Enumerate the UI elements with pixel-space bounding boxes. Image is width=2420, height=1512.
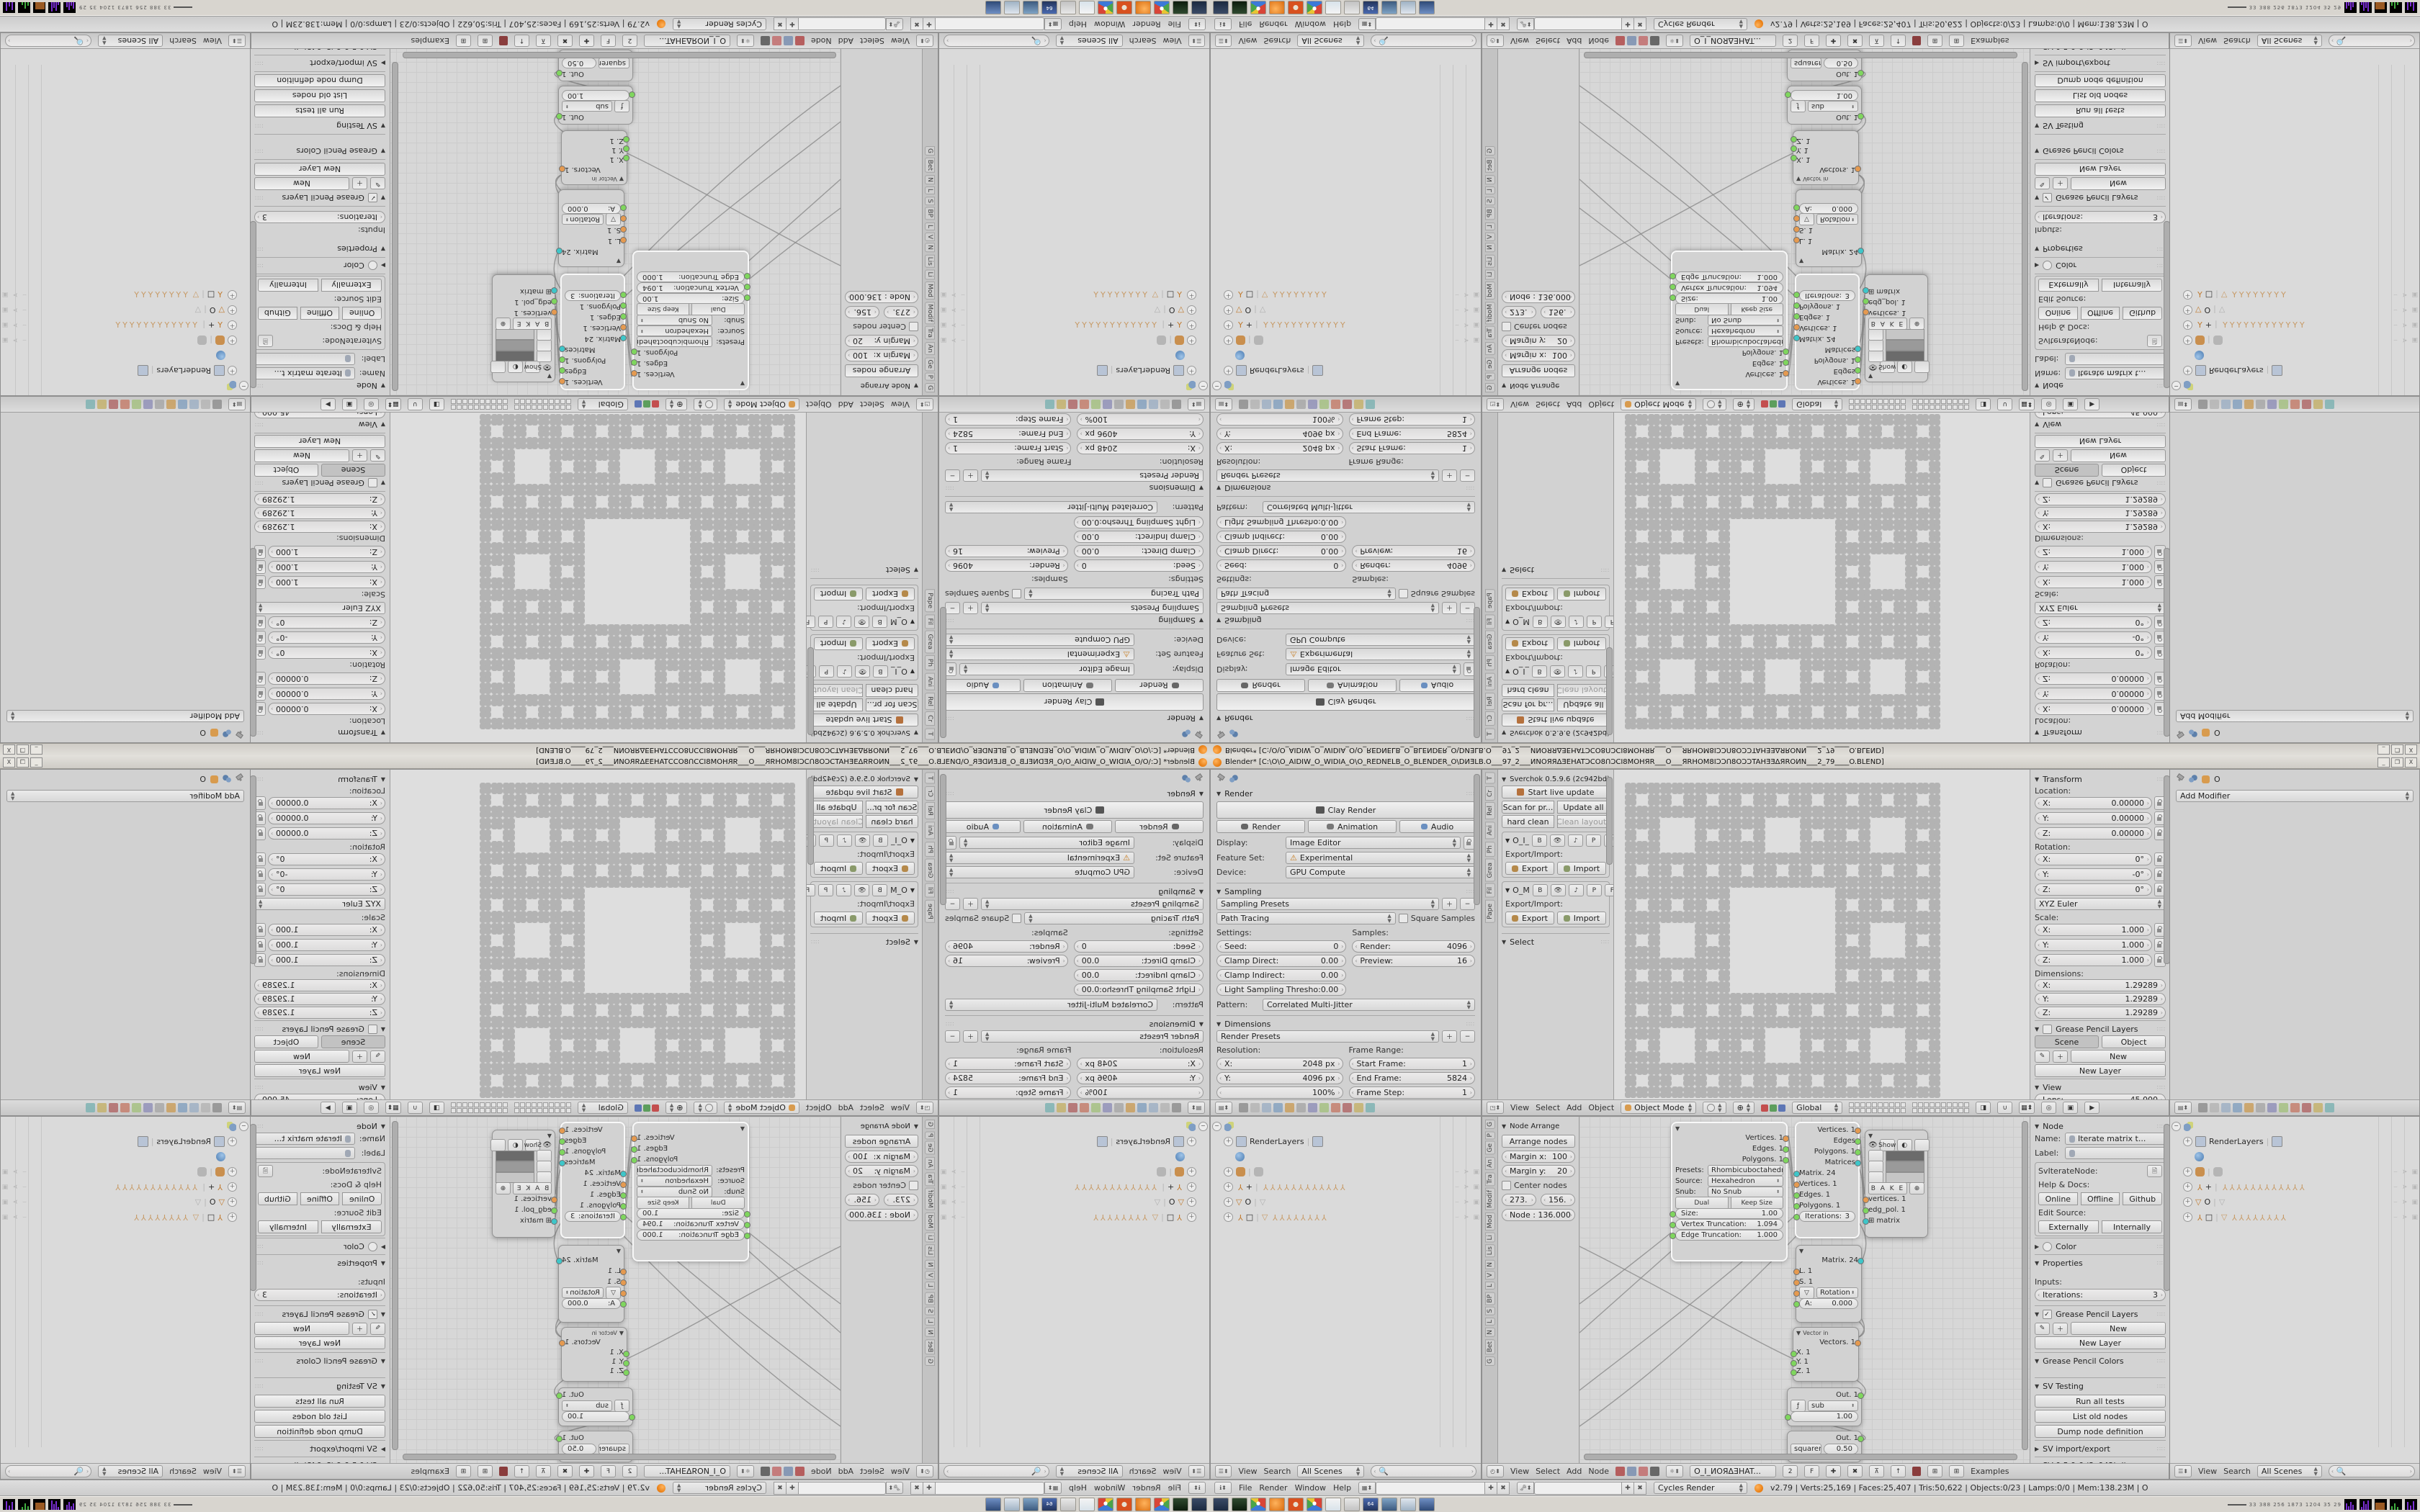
hide-icon[interactable]: ⌣	[961, 1214, 965, 1221]
node-iterate-matrix[interactable]: Vertices. 1 Edges Polygons. 1 Matrices M…	[1796, 1122, 1859, 1238]
dim-z-field[interactable]: Z:1.29289	[254, 1007, 385, 1019]
add-menu[interactable]: Add	[1567, 1467, 1582, 1476]
taskbar-app-viewer-icon[interactable]	[1381, 1, 1397, 14]
socket-x-in[interactable]	[623, 155, 629, 161]
online-button[interactable]: Online	[2038, 307, 2078, 320]
node-tab[interactable]: An	[1485, 1157, 1495, 1170]
hide-icon[interactable]: ⌣	[961, 1199, 965, 1206]
scale-z-field[interactable]: Z:1.000	[2035, 546, 2152, 558]
hard-clean-button[interactable]: hard clean	[1502, 684, 1554, 697]
expand-icon[interactable]: ＋	[2183, 290, 2192, 300]
render-icon[interactable]: ▣	[2, 1184, 9, 1191]
hide-icon[interactable]: ⌣	[22, 292, 27, 299]
pattern-dropdown[interactable]: Correlated Multi-Jitter▲▼	[1263, 999, 1475, 1011]
node-menu[interactable]: Node	[1588, 36, 1609, 45]
node-tab[interactable]: An	[926, 342, 936, 355]
socket-scale-in[interactable]	[620, 226, 627, 233]
expand-icon[interactable]: ＋	[2183, 336, 2192, 345]
eye-toggle-icon[interactable]: 👁	[854, 884, 869, 896]
socket-y-in[interactable]	[623, 1360, 629, 1367]
hide-icon[interactable]: ⌣	[2393, 1184, 2398, 1191]
examples-menu[interactable]: Examples	[411, 36, 449, 45]
function-dropdown[interactable]: sub⬍	[562, 101, 612, 112]
gp-new-button[interactable]: New	[2071, 1322, 2166, 1335]
bake-settings-icon[interactable]: ⊕	[1909, 1182, 1924, 1194]
render-ogl-icon[interactable]: ▣	[342, 1102, 357, 1114]
manipulator-icons[interactable]	[1761, 401, 1785, 408]
node-tab[interactable]: L	[1485, 1318, 1495, 1326]
data-tab-icon[interactable]	[1091, 400, 1101, 409]
world-tab-icon[interactable]	[1137, 400, 1147, 409]
tab-grease-pencil[interactable]: Grea	[1485, 859, 1495, 882]
hide-icon[interactable]: ⌣	[961, 1169, 965, 1176]
edge-truncation-field[interactable]: Edge Truncation:1.000	[1675, 1230, 1783, 1241]
node-tab[interactable]: Lis	[926, 254, 936, 267]
socket-edges-out[interactable]	[631, 1146, 637, 1153]
properties-tab-icons[interactable]	[1045, 1103, 1181, 1112]
canvas-v-scrollbar[interactable]	[392, 62, 398, 391]
preview-samples-field[interactable]: Preview:16	[1352, 955, 1475, 967]
taskbar-app-chrome-icon[interactable]	[1154, 1, 1170, 14]
sampling-panel-header[interactable]: ▼Sampling∷∷	[1216, 614, 1475, 627]
proportional-edit-icon[interactable]: ◎	[364, 1102, 379, 1114]
view-panel-header[interactable]: ▼View∷∷	[2035, 1081, 2166, 1094]
pencil-icon[interactable]: ✎	[2035, 1323, 2050, 1335]
edge-color-swatch[interactable]	[496, 1161, 534, 1172]
end-frame-field[interactable]: End Frame:5824	[1349, 1072, 1476, 1084]
select-menu[interactable]: Select	[1536, 1467, 1560, 1476]
render-tab-icon[interactable]	[1172, 1103, 1181, 1112]
rotation-y-field[interactable]: Y:-0°	[2035, 631, 2152, 644]
socket-scale-in[interactable]	[620, 1279, 627, 1286]
scene-tab-icon[interactable]	[1262, 1103, 1271, 1112]
node-tab[interactable]: N	[1485, 1260, 1495, 1269]
node-tab[interactable]: N	[926, 175, 936, 184]
tab-tools[interactable]: T	[926, 773, 936, 784]
feature-set-dropdown[interactable]: ⚠ Experimental▲▼	[945, 648, 1134, 660]
node-tab[interactable]: L	[926, 1318, 936, 1326]
view-panel-header[interactable]: ▼View∷∷	[2035, 418, 2166, 431]
gp-layers-panel-header[interactable]: ▼Grease Pencil Layers∷∷	[254, 192, 385, 204]
transform-panel-header[interactable]: ▼Transform∷∷	[254, 726, 385, 739]
restrict-toggles[interactable]: ⌣➤▣	[2, 292, 27, 299]
resolution-x-field[interactable]: X:2048 px	[1077, 442, 1204, 454]
sv-testing-panel-header[interactable]: ▼SV Testing∷∷	[254, 120, 385, 132]
delete-scene-button[interactable]: ✖	[1634, 18, 1646, 31]
clay-render-button[interactable]: Clay Render	[945, 801, 1204, 819]
socket-matrices-out[interactable]	[559, 1160, 565, 1166]
sampling-panel-header[interactable]: ▼Sampling∷∷	[1216, 885, 1475, 898]
restrict-toggles[interactable]: ⌣➤▣	[2393, 337, 2418, 344]
display-mode-dropdown[interactable]: All Scenes▲▼	[1056, 35, 1123, 47]
sv-testing-panel-header[interactable]: ▼SV Testing∷∷	[2035, 120, 2166, 132]
render-icon[interactable]: ▣	[2, 337, 9, 344]
import-button[interactable]: Import	[1557, 862, 1606, 875]
disk-graph-widget[interactable]	[2405, 1499, 2417, 1510]
render-icon[interactable]: ▣	[2411, 322, 2418, 329]
node-vector-in[interactable]: ▼Vector in Vectors. 1 X. 1 Y. 1 Z. 1	[561, 130, 627, 185]
function-icon[interactable]: ƒ	[1791, 1400, 1806, 1412]
socket-vertices-in[interactable]	[1793, 1182, 1800, 1188]
texture-tree-icon[interactable]	[772, 1467, 781, 1476]
screen-layout-selector[interactable]: ▦⬍ ✚✖	[910, 18, 1062, 31]
scan-for-props-button[interactable]: Scan for pr...	[866, 801, 918, 814]
add-modifier-dropdown[interactable]: Add Modifier▲▼	[2176, 710, 2414, 722]
socket-vertices-out[interactable]	[1855, 1128, 1861, 1134]
particles-tab-icon[interactable]	[1057, 400, 1066, 409]
node-tab[interactable]: V	[1485, 233, 1495, 241]
object-tab-icon[interactable]	[2244, 400, 2254, 409]
render-panel-header[interactable]: ▼Render∷∷	[945, 787, 1204, 800]
render-engine-dropdown[interactable]: Cycles Render▲▼	[673, 1482, 766, 1494]
shader-tree-icon[interactable]	[795, 36, 805, 45]
node-tab[interactable]: Li	[1485, 270, 1495, 280]
tab-filter[interactable]: Fil	[926, 883, 936, 898]
transform-panel-header[interactable]: ▼Transform∷∷	[254, 773, 385, 786]
render-engine-dropdown[interactable]: Cycles Render▲▼	[673, 18, 766, 30]
outliner-row-world[interactable]	[941, 1149, 1208, 1164]
gp-new-button[interactable]: New	[2071, 449, 2166, 462]
window-menu[interactable]: Window	[1295, 1483, 1326, 1493]
taskbar-app-viewer-icon[interactable]	[1023, 1498, 1039, 1511]
restrict-toggles[interactable]: ⌣➤▣	[941, 1184, 965, 1191]
sampling-panel-header[interactable]: ▼Sampling∷∷	[945, 885, 1204, 898]
search-input[interactable]: 🔍	[2329, 35, 2415, 47]
render-menu[interactable]: Render	[1259, 19, 1287, 29]
socket-size-in[interactable]	[1670, 294, 1676, 301]
search-input[interactable]: 🔍	[5, 35, 91, 47]
clamp-indirect-field[interactable]: Clamp Indirect:0.00	[1216, 969, 1346, 981]
pivot-dropdown[interactable]: ⊕▲▼	[665, 1102, 688, 1114]
node-matrix-in[interactable]: ▼ Matrix. 24 L. 1 S. 1 ▽Rotation⬍ A:0.00…	[1796, 1245, 1862, 1323]
socket-matrix-out[interactable]	[556, 248, 563, 254]
snap-element-dropdown[interactable]: ▦⬍	[2019, 1102, 2035, 1114]
value-field[interactable]: 0.50	[562, 1444, 597, 1454]
presets-dropdown[interactable]: Rhombicuboctahedron⬍	[637, 336, 712, 347]
socket-polygons-out[interactable]	[1855, 356, 1861, 363]
socket-size-in[interactable]	[744, 294, 750, 301]
show-toggle[interactable]: Show	[1880, 361, 1895, 373]
expand-icon[interactable]: ＋	[228, 366, 237, 375]
search-input[interactable]: 🔍	[944, 1465, 1049, 1477]
vertex-color-swatch[interactable]	[1886, 351, 1924, 361]
bake-button[interactable]: B A K E	[1868, 318, 1907, 330]
constraints-tab-icon[interactable]	[155, 400, 164, 409]
view-menu[interactable]: View	[203, 36, 222, 45]
internally-button[interactable]: Internally	[258, 279, 318, 292]
collapse-icon[interactable]: ▼	[1675, 380, 1680, 387]
texture-tab-icon[interactable]	[2302, 400, 2311, 409]
socket-matrix-in[interactable]	[1793, 335, 1800, 341]
node-tab[interactable]: Ge	[1485, 1141, 1495, 1155]
socket-out[interactable]	[1857, 1392, 1864, 1399]
arrange-nodes-button[interactable]: Arrange nodes	[845, 1135, 918, 1148]
iterations-field[interactable]: Iterations:3	[565, 1211, 621, 1222]
layout-grid-icon-2[interactable]: ⊞	[456, 1465, 471, 1477]
start-live-update-button[interactable]: Start live update	[1502, 786, 1610, 798]
collapse-icon[interactable]: ▼	[910, 618, 915, 625]
outliner-row-armature-box[interactable]: ＋ Y □ | ▽ YYYYYYYY ⌣➤▣	[2, 1210, 248, 1225]
delete-layout-button[interactable]: ✖	[1497, 1482, 1510, 1495]
render-icon[interactable]: ▣	[1473, 1214, 1479, 1221]
world-tab-icon[interactable]	[178, 1103, 187, 1112]
hide-icon[interactable]: ⌣	[2393, 292, 2398, 299]
layer-grid-2[interactable]	[451, 1102, 508, 1113]
cpu-graph-widget[interactable]	[63, 2, 76, 13]
gp-object-tab[interactable]: Object	[254, 464, 318, 477]
expand-icon[interactable]: ＋	[2183, 1167, 2192, 1176]
doc-icon[interactable]: 🗎	[2147, 335, 2162, 347]
restore-button[interactable]: ❐	[17, 745, 29, 755]
gp-new-layer-button[interactable]: New Layer	[2035, 163, 2166, 176]
animate-toggle-icon[interactable]: ♪	[1569, 884, 1584, 896]
node-tab[interactable]: Tra	[926, 1172, 936, 1186]
taskbar-app-media-icon[interactable]	[985, 1498, 1001, 1511]
export-button[interactable]: Export	[1505, 912, 1554, 924]
tab-filter[interactable]: Fil	[1485, 883, 1495, 898]
display-mode-dropdown[interactable]: All Scenes▲▼	[2257, 35, 2322, 47]
edge-color-swatch[interactable]	[1886, 340, 1924, 351]
compositing-tree-icon[interactable]	[784, 1467, 793, 1476]
outliner-row-armature-box[interactable]: ＋ Y □ | ▽ YYYYYYYY ⌣➤▣	[2172, 1210, 2418, 1225]
render-icon[interactable]: ▣	[941, 292, 947, 299]
node-tab[interactable]: S	[1485, 197, 1495, 205]
sverchok-tree-icon[interactable]	[761, 1467, 770, 1476]
preview-samples-field[interactable]: Preview:16	[945, 955, 1068, 967]
vertex-truncation-field[interactable]: Vertex Truncation:1.094	[1675, 1219, 1783, 1230]
socket-z-in[interactable]	[1791, 1369, 1797, 1376]
sampling-presets-dropdown[interactable]: Sampling Presets▲▼	[981, 602, 1204, 614]
iterations-field[interactable]: Iterations:3	[254, 1289, 385, 1301]
screwdriver-icon[interactable]	[1182, 775, 1191, 783]
socket-vt-in[interactable]	[1670, 1222, 1676, 1228]
help-menu[interactable]: Help	[1069, 1483, 1087, 1493]
preview-samples-field[interactable]: Preview:16	[945, 545, 1068, 557]
eye-icon[interactable]: 👁	[1868, 363, 1878, 371]
taskbar-app-chrome2-icon[interactable]	[1307, 1498, 1322, 1511]
editor-type-selector[interactable]: ◳⬍	[1487, 398, 1504, 410]
gp-new-layer-button[interactable]: New Layer	[2035, 1064, 2166, 1077]
add-menu[interactable]: Add	[1567, 1103, 1582, 1112]
internally-button[interactable]: Internally	[2102, 279, 2162, 292]
dim-z-field[interactable]: Z:1.29289	[254, 493, 385, 505]
renderlayers-tab-icon[interactable]	[201, 400, 210, 409]
cpu-graph-widget[interactable]	[2344, 2, 2357, 13]
modifiers-tab-icon[interactable]	[2267, 400, 2277, 409]
render-icon[interactable]: ▣	[941, 1169, 947, 1176]
socket-vertices-out[interactable]	[1783, 370, 1789, 377]
add-menu[interactable]: Add	[838, 36, 853, 45]
scale-manipulator-icon[interactable]	[1778, 1104, 1785, 1112]
modifiers-tab-icon[interactable]	[1308, 1103, 1317, 1112]
socket-y-in[interactable]	[623, 145, 629, 152]
taskbar-app-calculator-icon[interactable]	[1004, 1, 1020, 14]
manipulator-icons[interactable]	[1761, 1104, 1785, 1112]
run-all-tests-button[interactable]: Run all tests	[2035, 1395, 2166, 1408]
properties-tab-icons[interactable]	[1239, 400, 1375, 409]
shade-toggle-icon[interactable]: ◐	[1897, 361, 1912, 373]
manipulator-icons[interactable]	[635, 1104, 659, 1112]
render-anim-ogl-icon[interactable]: ▶	[321, 1102, 336, 1114]
socket-angle-in[interactable]	[620, 204, 627, 211]
node-arrange-panel-header[interactable]: ▼Node Arrange	[845, 1120, 918, 1133]
size-field[interactable]: Size:1.00	[1675, 1208, 1783, 1219]
location-y-field[interactable]: Y:0.00000	[268, 812, 385, 824]
display-lock-icon[interactable]	[945, 662, 956, 676]
socket-edgpol-in[interactable]	[1863, 1207, 1869, 1214]
renderlayers-tab-icon[interactable]	[1250, 400, 1260, 409]
taskbar-app-recorder-icon[interactable]	[1173, 1, 1188, 14]
collapse-icon[interactable]: ▼	[617, 258, 621, 264]
extra-toggle[interactable]	[490, 361, 506, 373]
properties-panel-header[interactable]: ▼Properties∷∷	[254, 1256, 385, 1269]
extra-toggle[interactable]	[1914, 1139, 1930, 1151]
iterations-field[interactable]: Iterations:3	[2035, 211, 2166, 223]
screwdriver-icon[interactable]	[1229, 729, 1238, 737]
texture-tab-icon[interactable]	[1068, 400, 1077, 409]
render-icon[interactable]: ▣	[1473, 337, 1479, 344]
view-menu[interactable]: View	[891, 36, 910, 45]
presets-dropdown[interactable]: Rhombicuboctahedron⬍	[637, 1165, 712, 1176]
viewport-shading-dropdown[interactable]: ▲▼	[694, 398, 717, 410]
value-field[interactable]: 0.50	[1824, 1444, 1859, 1454]
socket-edgpol-in[interactable]	[551, 298, 557, 305]
render-icon[interactable]: ▣	[1473, 322, 1479, 329]
restrict-toggles[interactable]: ⌣➤▣	[1455, 1184, 1479, 1191]
collapse-icon[interactable]: ▼	[1675, 1125, 1680, 1132]
expand-icon[interactable]: ＋	[1187, 366, 1196, 375]
layout-grid-icon[interactable]: ⊞	[1927, 1465, 1942, 1477]
particles-tab-icon[interactable]	[1354, 400, 1363, 409]
sv-import-export-panel-header[interactable]: ▶SV import/export∷∷	[2035, 57, 2166, 70]
tab-relations[interactable]: Rel	[1485, 693, 1495, 710]
gp-checkbox[interactable]	[2043, 1310, 2052, 1319]
pin-icon[interactable]	[1216, 729, 1225, 737]
editor-type-selector[interactable]: ☰⬍	[1188, 35, 1205, 47]
socket-y-in[interactable]	[1791, 1360, 1797, 1367]
clamp-direct-field[interactable]: Clamp Direct:0.00	[1074, 955, 1204, 967]
node-tab[interactable]: BP	[926, 1292, 936, 1305]
export-button[interactable]: Export	[866, 862, 915, 875]
taskbar-app-chrome-icon[interactable]	[1250, 1498, 1266, 1511]
screen-layout-selector[interactable]: ▦⬍ ✚✖	[1358, 18, 1510, 31]
fake-user-button[interactable]: F	[601, 1465, 616, 1477]
material-tab-icon[interactable]	[120, 400, 130, 409]
constraints-tab-icon[interactable]	[2256, 400, 2265, 409]
examples-menu[interactable]: Examples	[1971, 1467, 2009, 1476]
color-brush-icon[interactable]	[537, 328, 552, 341]
keep-size-button[interactable]: Keep Size	[637, 1197, 690, 1209]
hide-icon[interactable]: ⌣	[2393, 1214, 2398, 1221]
gp-colors-panel-header[interactable]: ▼Grease Pencil Colors∷∷	[254, 1354, 385, 1367]
search-menu[interactable]: Search	[2223, 36, 2251, 45]
pattern-dropdown[interactable]: Correlated Multi-Jitter▲▼	[945, 999, 1157, 1011]
editor-type-selector[interactable]: ▤⬍	[2174, 1102, 2192, 1114]
node-canvas[interactable]: ▼ Vertices. 1 Edges. 1 Polygons. 1 Prese…	[390, 49, 841, 395]
add-scene-button[interactable]: ✚	[786, 18, 798, 31]
node-matrix-in[interactable]: ▼ Matrix. 24 L. 1 S. 1 ▽Rotation⬍ A:0.00…	[1796, 189, 1862, 267]
restrict-toggles[interactable]: ⌣➤▣	[1455, 1199, 1479, 1206]
taskbar-app-dosbox-icon[interactable]: 64	[1041, 1498, 1057, 1511]
expand-icon[interactable]: ＋	[2183, 1197, 2192, 1207]
node-tab[interactable]: N	[926, 243, 936, 253]
socket-size-in[interactable]	[744, 1211, 750, 1218]
color-panel-header[interactable]: ▶Color∷∷	[2035, 1240, 2166, 1253]
pattern-dropdown[interactable]: Correlated Multi-Jitter▲▼	[1263, 501, 1475, 513]
restrict-toggles[interactable]: ⌣➤▣	[2, 322, 27, 329]
node-math-sub[interactable]: Out. 1 ƒsub⬍ 1.00	[558, 86, 633, 125]
socket-polygons-out[interactable]	[631, 348, 637, 355]
node-matrix-in[interactable]: ▼ Matrix. 24 L. 1 S. 1 ▽Rotation⬍ A:0.00…	[558, 1245, 624, 1323]
rotation-x-field[interactable]: X:0°	[2035, 853, 2152, 865]
screen-layout-selector[interactable]: ▦⬍ ✚✖	[910, 1482, 1062, 1495]
taskbar-app-dosbox-icon[interactable]: 64	[1041, 1, 1057, 14]
editor-type-selector[interactable]: ◴⬍	[916, 1465, 933, 1477]
gp-new-layer-button[interactable]: New Layer	[254, 1064, 385, 1077]
display-dropdown[interactable]: Image Editor▲▼	[1286, 837, 1461, 849]
layout-grid-icon-2[interactable]: ⊞	[456, 35, 471, 47]
tree-datablock-icon[interactable]: ⚛⬍	[737, 35, 754, 47]
node-math-sub[interactable]: Out. 1 ƒsub⬍ 1.00	[1787, 1387, 1862, 1426]
tree-name-field[interactable]: O_I_ИОЯΔƎHAT...	[644, 35, 730, 47]
scene-tab-icon[interactable]	[1149, 1103, 1158, 1112]
update-all-button[interactable]: Update all	[1557, 698, 1610, 711]
render-icon[interactable]: ▣	[1473, 1169, 1479, 1176]
expand-icon[interactable]: ＋	[1224, 1182, 1233, 1192]
render-menu[interactable]: Render	[1259, 1483, 1287, 1493]
world-tab-icon[interactable]	[2233, 400, 2242, 409]
dim-z-field[interactable]: Z:1.29289	[2035, 1007, 2166, 1019]
compositing-tree-icon[interactable]	[1627, 1467, 1636, 1476]
tab-paper[interactable]: Pape	[926, 900, 936, 923]
object-tab-icon[interactable]	[2244, 1103, 2254, 1112]
scale-z-field[interactable]: Z:1.000	[2035, 954, 2152, 966]
restore-button[interactable]: ❐	[2391, 757, 2403, 768]
function-dropdown[interactable]: squareroot⬍	[1791, 58, 1821, 68]
canvas-h-scrollbar[interactable]	[1584, 52, 2017, 58]
view-menu[interactable]: View	[1510, 36, 1529, 45]
hide-icon[interactable]: ⌣	[1455, 307, 1459, 314]
externally-button[interactable]: Externally	[321, 279, 382, 292]
resolution-percent-field[interactable]: 100%	[1077, 1086, 1204, 1099]
constraints-tab-icon[interactable]	[2256, 1103, 2265, 1112]
color-brush-icon[interactable]	[537, 350, 552, 362]
margin-x-field[interactable]: Margin x:100	[845, 349, 918, 361]
restrict-toggles[interactable]: ⌣➤▣	[2, 1214, 27, 1221]
physics-tab-icon[interactable]	[1045, 400, 1054, 409]
outliner-row-renderlayers[interactable]: ＋ RenderLayers |	[2, 1134, 248, 1149]
material-tab-icon[interactable]	[1331, 400, 1340, 409]
angle-field[interactable]: A:0.000	[1799, 1298, 1858, 1309]
object-menu[interactable]: Object	[1588, 400, 1614, 409]
editor-type-selector[interactable]: ℹ⬍	[1214, 18, 1232, 30]
bake-settings-icon[interactable]: ⊕	[1909, 318, 1924, 330]
outliner-row-mesh[interactable]: ＋ | ⌣➤▣	[2172, 333, 2418, 348]
gpu-graph-widget[interactable]	[2359, 1499, 2372, 1510]
restrict-toggles[interactable]: ⌣➤▣	[2393, 1199, 2418, 1206]
location-z-field[interactable]: Z:0.00000	[268, 827, 385, 840]
shade-toggle-icon[interactable]: ◐	[508, 361, 523, 373]
externally-button[interactable]: Externally	[2038, 1220, 2099, 1233]
viewport-canvas[interactable]	[1614, 413, 2030, 742]
node-viewer-draw[interactable]: ▼ 👁 Show ◐ B A K E ⊕ vertices. 1 edg_pol…	[1865, 1130, 1928, 1238]
expand-icon[interactable]: ＋	[1187, 1212, 1196, 1222]
help-menu[interactable]: Help	[1333, 19, 1351, 29]
outliner-row-renderlayers[interactable]: ＋ RenderLayers |	[941, 1134, 1208, 1149]
orientation-dropdown[interactable]: Global▲▼	[1792, 1102, 1842, 1114]
pin-tree-icon[interactable]: ⊼	[1869, 35, 1884, 47]
display-mode-dropdown[interactable]: All Scenes▲▼	[98, 1465, 163, 1477]
